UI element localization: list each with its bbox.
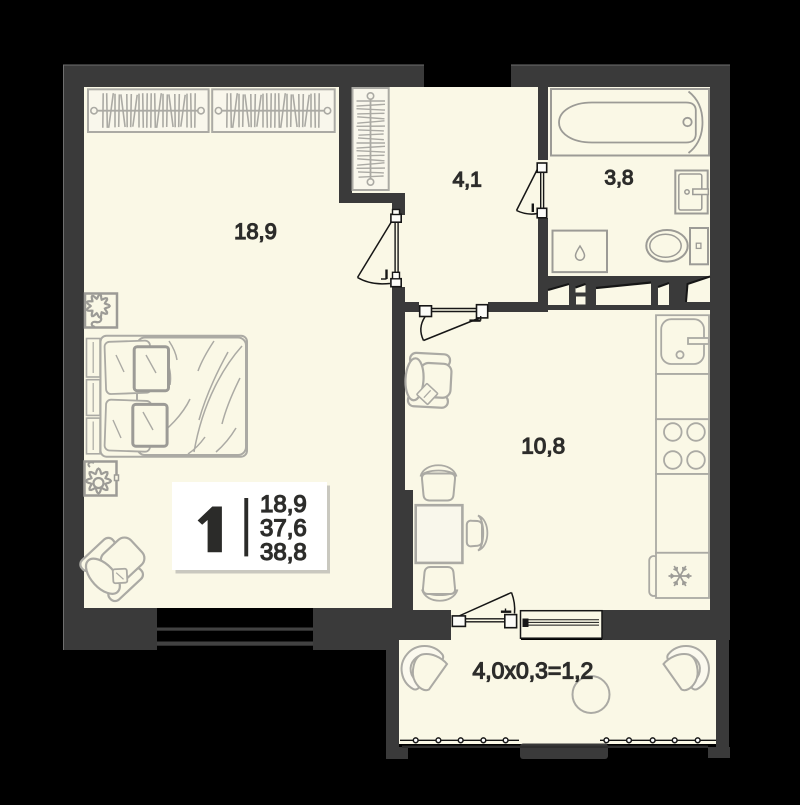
svg-text:18,9: 18,9 [234, 219, 277, 244]
svg-text:18,9: 18,9 [260, 491, 307, 518]
svg-text:4,0x0,3=1,2: 4,0x0,3=1,2 [472, 658, 593, 684]
svg-text:4,1: 4,1 [453, 169, 482, 192]
svg-text:10,8: 10,8 [521, 434, 565, 459]
svg-text:3,8: 3,8 [604, 166, 633, 189]
svg-text:37,6: 37,6 [260, 515, 307, 542]
svg-text:38,8: 38,8 [260, 539, 307, 566]
